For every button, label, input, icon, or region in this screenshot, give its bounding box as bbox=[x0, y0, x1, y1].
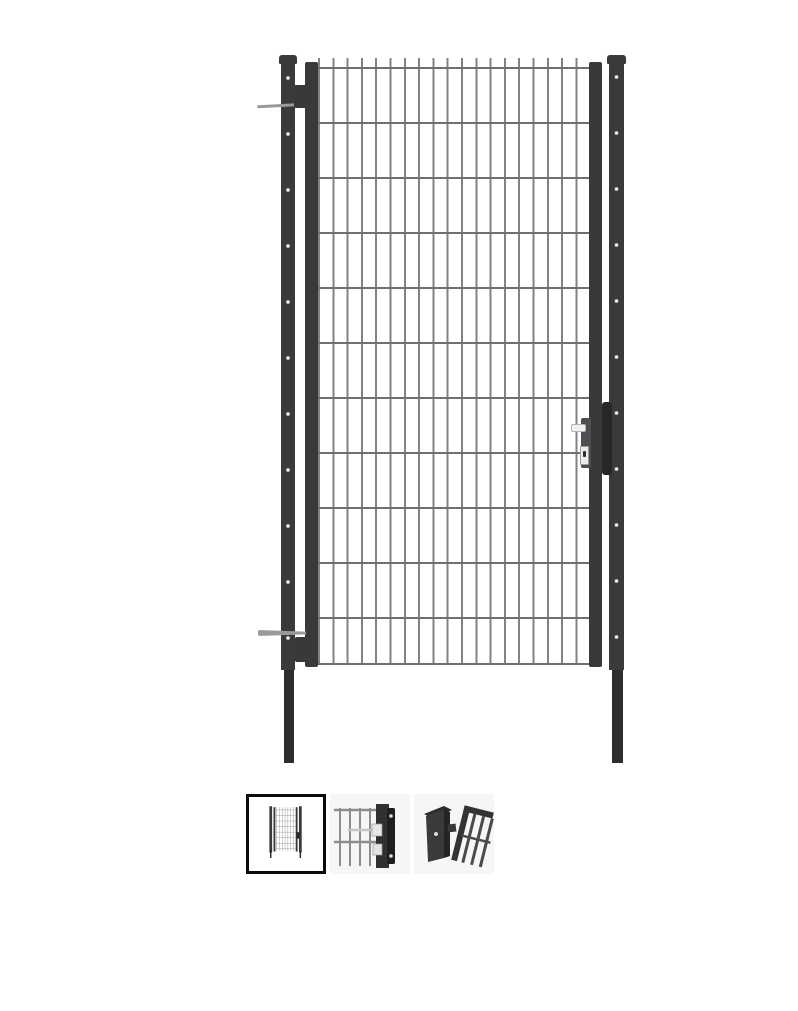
lock-cylinder bbox=[580, 446, 589, 465]
gate-frame-left-bar bbox=[305, 62, 318, 667]
bottom-hinge bbox=[295, 637, 309, 662]
bottom-hinge-bracket bbox=[258, 630, 306, 636]
wire-mesh-panel bbox=[318, 58, 589, 665]
thumbnail-post-gate-corner[interactable] bbox=[414, 794, 494, 874]
lock-cover-plate bbox=[602, 402, 612, 475]
lock-detail-thumb-graphic bbox=[330, 794, 410, 874]
lever-handle bbox=[571, 424, 586, 432]
main-product-image bbox=[0, 0, 798, 780]
top-hinge bbox=[294, 85, 308, 108]
keyhole bbox=[583, 451, 586, 457]
thumbnail-lock-detail[interactable] bbox=[330, 794, 410, 874]
left-post-ground-spike bbox=[284, 670, 295, 763]
right-post bbox=[609, 57, 624, 670]
product-image-viewer bbox=[0, 0, 798, 1011]
gate-front-view-thumb-graphic bbox=[249, 797, 323, 871]
post-corner-thumb-graphic bbox=[414, 794, 494, 874]
thumbnail-gate-front-view[interactable] bbox=[246, 794, 326, 874]
left-post bbox=[281, 58, 295, 670]
right-post-ground-spike bbox=[612, 670, 623, 763]
mesh-horizontal-wires bbox=[316, 67, 591, 660]
gate-frame-right-bar bbox=[589, 62, 602, 667]
